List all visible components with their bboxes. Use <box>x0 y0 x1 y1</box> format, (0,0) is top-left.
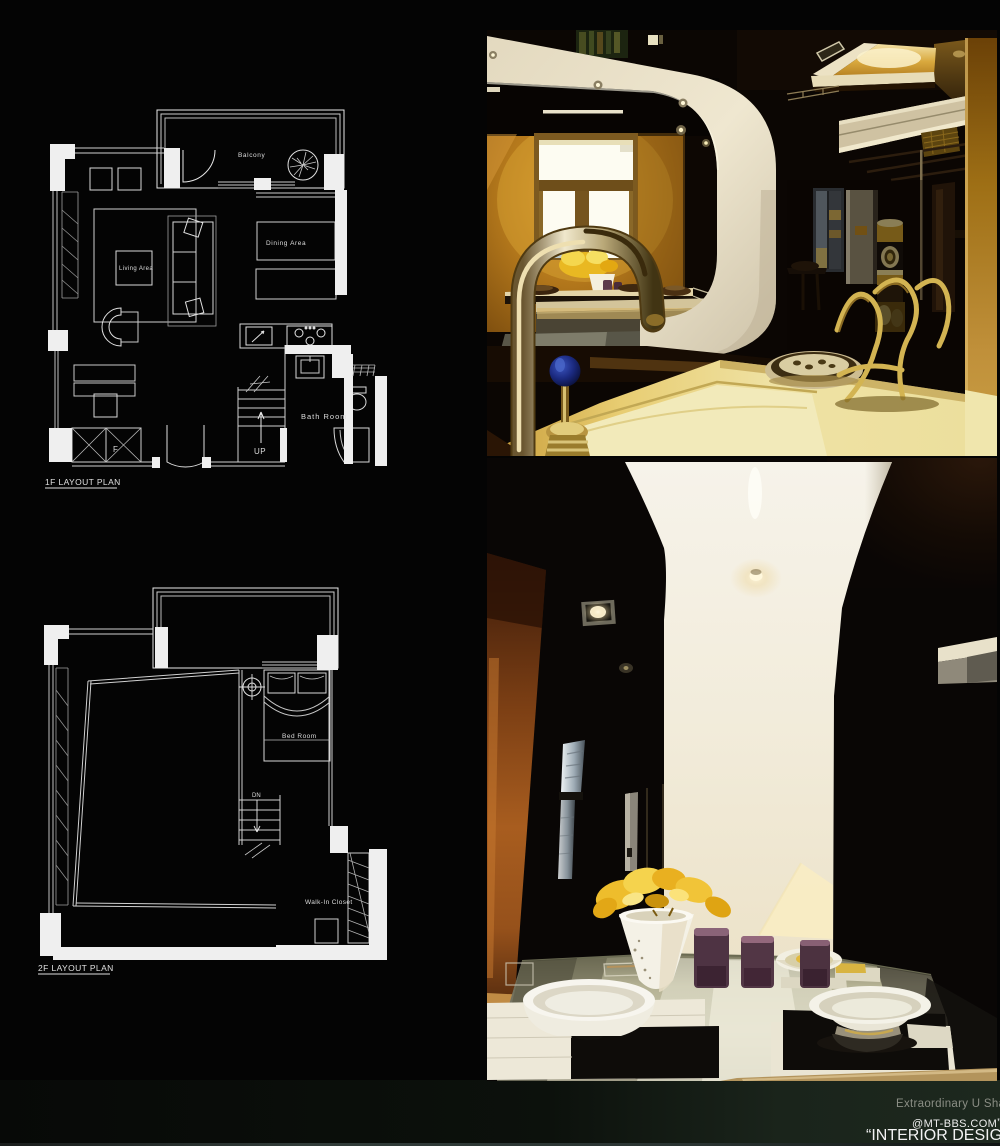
svg-text:Living Area: Living Area <box>119 266 153 272</box>
svg-text:1F LAYOUT PLAN: 1F LAYOUT PLAN <box>45 477 121 487</box>
svg-text:F: F <box>113 445 118 454</box>
svg-text:UP: UP <box>254 447 266 456</box>
svg-text:Dining Area: Dining Area <box>266 240 306 247</box>
svg-text:Bed Room: Bed Room <box>282 733 317 740</box>
svg-text:Balcony: Balcony <box>238 152 265 159</box>
svg-text:Walk-In Closet: Walk-In Closet <box>305 899 353 906</box>
svg-text:2F LAYOUT PLAN: 2F LAYOUT PLAN <box>38 963 114 973</box>
svg-text:Bath Room: Bath Room <box>301 412 348 421</box>
svg-text:DN: DN <box>252 793 261 799</box>
